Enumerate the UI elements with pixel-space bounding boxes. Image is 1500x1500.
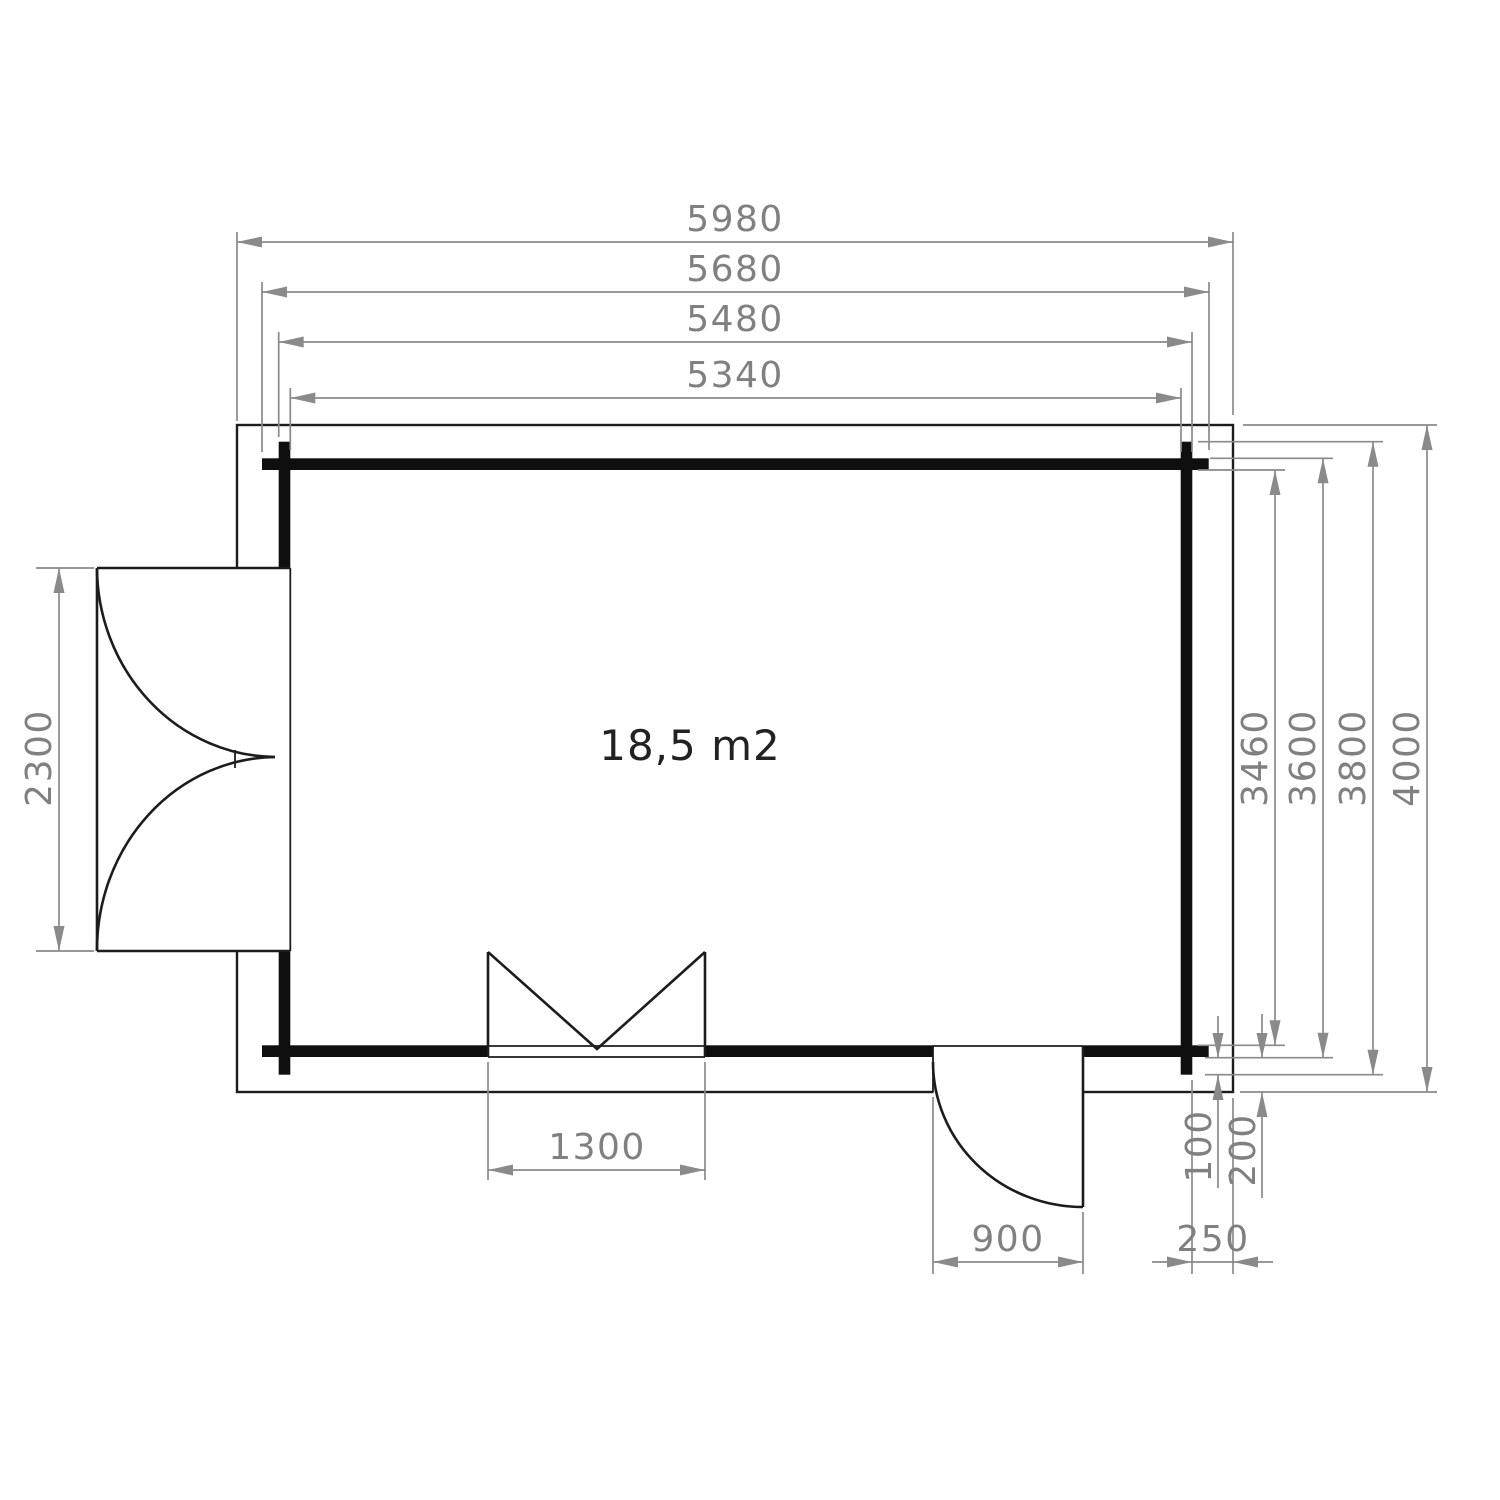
dimension-1300: 1300: [488, 1062, 705, 1180]
arrowhead: [1156, 393, 1181, 404]
arrowhead: [1270, 1020, 1281, 1045]
dimension-label: 4000: [1387, 709, 1428, 807]
dimension-200: 200: [1223, 1014, 1268, 1198]
arrowhead: [1167, 337, 1192, 348]
area-label: 18,5 m2: [599, 721, 781, 770]
wall-left-lower-segment: [279, 951, 291, 1075]
arrowhead: [1208, 237, 1233, 248]
dimension-label: 100: [1179, 1109, 1220, 1182]
arrowhead: [1058, 1257, 1083, 1268]
wall-left-upper-segment: [279, 442, 291, 568]
double-door-cover: [95, 569, 291, 951]
wall-right: [1181, 442, 1193, 1075]
arrowhead: [1318, 1033, 1329, 1058]
arrowhead: [1270, 470, 1281, 495]
arrowhead: [1257, 1092, 1268, 1117]
window-sash-symbol: [488, 952, 705, 1049]
wall-bottom-middle-segment: [705, 1045, 933, 1057]
dimension-3460: 3460: [1198, 470, 1285, 1045]
arrowhead: [290, 393, 315, 404]
arrowhead: [237, 237, 262, 248]
dimension-label: 3600: [1283, 709, 1324, 807]
dimension-5680: 5680: [262, 249, 1209, 452]
window: [488, 952, 705, 1057]
floor-plan-drawing: 5980 5680 5480 5340 3460 3600: [0, 0, 1500, 1500]
dimension-label: 5340: [686, 355, 784, 396]
dimension-label: 2300: [19, 709, 60, 807]
arrowhead: [54, 568, 65, 593]
arrowhead: [1422, 425, 1433, 450]
floor-plan-page: 5980 5680 5480 5340 3460 3600: [0, 0, 1500, 1500]
arrowhead: [1213, 1075, 1224, 1100]
dimension-label: 3460: [1235, 709, 1276, 807]
wall-bottom-left-segment: [262, 1045, 488, 1057]
dimension-label: 5980: [686, 199, 784, 240]
dimension-5340: 5340: [290, 355, 1181, 452]
arrowhead: [1368, 1050, 1379, 1075]
dimension-label: 900: [971, 1219, 1044, 1260]
arrowhead: [279, 337, 304, 348]
dimension-label: 3800: [1333, 709, 1374, 807]
arrowhead: [933, 1257, 958, 1268]
arrowhead: [680, 1165, 705, 1176]
arrowhead: [1184, 287, 1209, 298]
dimension-label: 200: [1223, 1113, 1264, 1186]
dimension-label: 1300: [548, 1127, 646, 1168]
wall-top: [262, 458, 1209, 470]
arrowhead: [54, 926, 65, 951]
arrowhead: [488, 1165, 513, 1176]
dimension-label: 5480: [686, 299, 784, 340]
dimension-label: 5680: [686, 249, 784, 290]
dimension-2300: 2300: [19, 568, 94, 951]
arrowhead: [1318, 458, 1329, 483]
dimension-label: 250: [1176, 1219, 1249, 1260]
arrowhead: [1368, 442, 1379, 467]
arrowhead: [262, 287, 287, 298]
arrowhead: [1422, 1067, 1433, 1092]
